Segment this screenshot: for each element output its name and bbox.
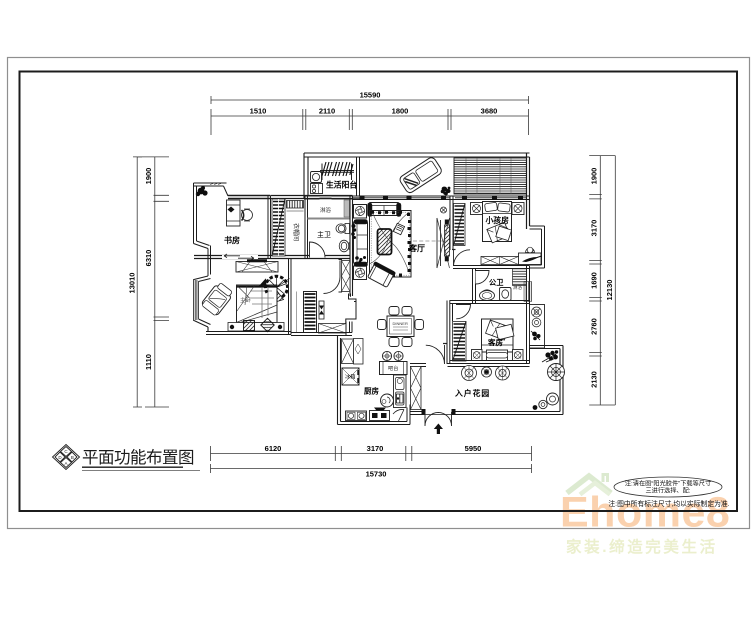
svg-text:淋浴: 淋浴 — [513, 284, 522, 291]
svg-text:吧台: 吧台 — [388, 364, 398, 372]
svg-text:DINNER: DINNER — [393, 321, 408, 326]
svg-text:3680: 3680 — [481, 107, 498, 116]
svg-text:淋浴: 淋浴 — [320, 206, 332, 214]
svg-text:A: A — [64, 461, 67, 466]
svg-text:15730: 15730 — [366, 470, 387, 479]
svg-text:主卫: 主卫 — [317, 230, 331, 239]
svg-text:B: B — [71, 455, 74, 460]
svg-text:主卧: 主卧 — [240, 296, 252, 304]
svg-text:书房: 书房 — [224, 235, 240, 245]
svg-text:生活阳台: 生活阳台 — [326, 180, 357, 190]
svg-text:注:请在图“阳光胶件”下载等尺寸: 注:请在图“阳光胶件”下载等尺寸 — [625, 480, 711, 488]
svg-text:入户花园: 入户花园 — [454, 388, 490, 398]
svg-text:客房: 客房 — [487, 337, 503, 347]
svg-text:客厅: 客厅 — [408, 243, 425, 253]
svg-text:2760: 2760 — [589, 318, 598, 335]
svg-text:13010: 13010 — [128, 273, 137, 294]
svg-text:3170: 3170 — [367, 444, 384, 453]
svg-text:15590: 15590 — [360, 91, 381, 100]
svg-text:6310: 6310 — [144, 250, 153, 267]
svg-text:1510: 1510 — [250, 107, 267, 116]
svg-text:厨房: 厨房 — [364, 386, 379, 396]
svg-text:冰箱: 冰箱 — [345, 373, 355, 381]
svg-text:公卫: 公卫 — [489, 278, 503, 287]
svg-text:2110: 2110 — [319, 107, 335, 116]
svg-text:1110: 1110 — [144, 354, 153, 370]
svg-text:5950: 5950 — [465, 444, 482, 453]
svg-text:衣帽间: 衣帽间 — [292, 223, 300, 241]
svg-text:家装.缔造完美生活: 家装.缔造完美生活 — [566, 537, 718, 556]
svg-text:12130: 12130 — [605, 280, 614, 301]
svg-text:1690: 1690 — [589, 272, 598, 289]
svg-text:1900: 1900 — [589, 168, 598, 185]
svg-text:小孩房: 小孩房 — [485, 215, 510, 225]
svg-text:注:图中所有标注尺寸,均以实际制定为准.: 注:图中所有标注尺寸,均以实际制定为准. — [608, 499, 729, 508]
svg-text:1800: 1800 — [392, 107, 409, 116]
svg-text:平面功能布置图: 平面功能布置图 — [82, 448, 194, 467]
svg-text:1900: 1900 — [144, 168, 153, 185]
svg-text:3170: 3170 — [589, 220, 598, 237]
svg-text:三进行选择、配:: 三进行选择、配: — [645, 487, 690, 495]
svg-text:2130: 2130 — [589, 371, 598, 388]
svg-text:6120: 6120 — [265, 444, 282, 453]
